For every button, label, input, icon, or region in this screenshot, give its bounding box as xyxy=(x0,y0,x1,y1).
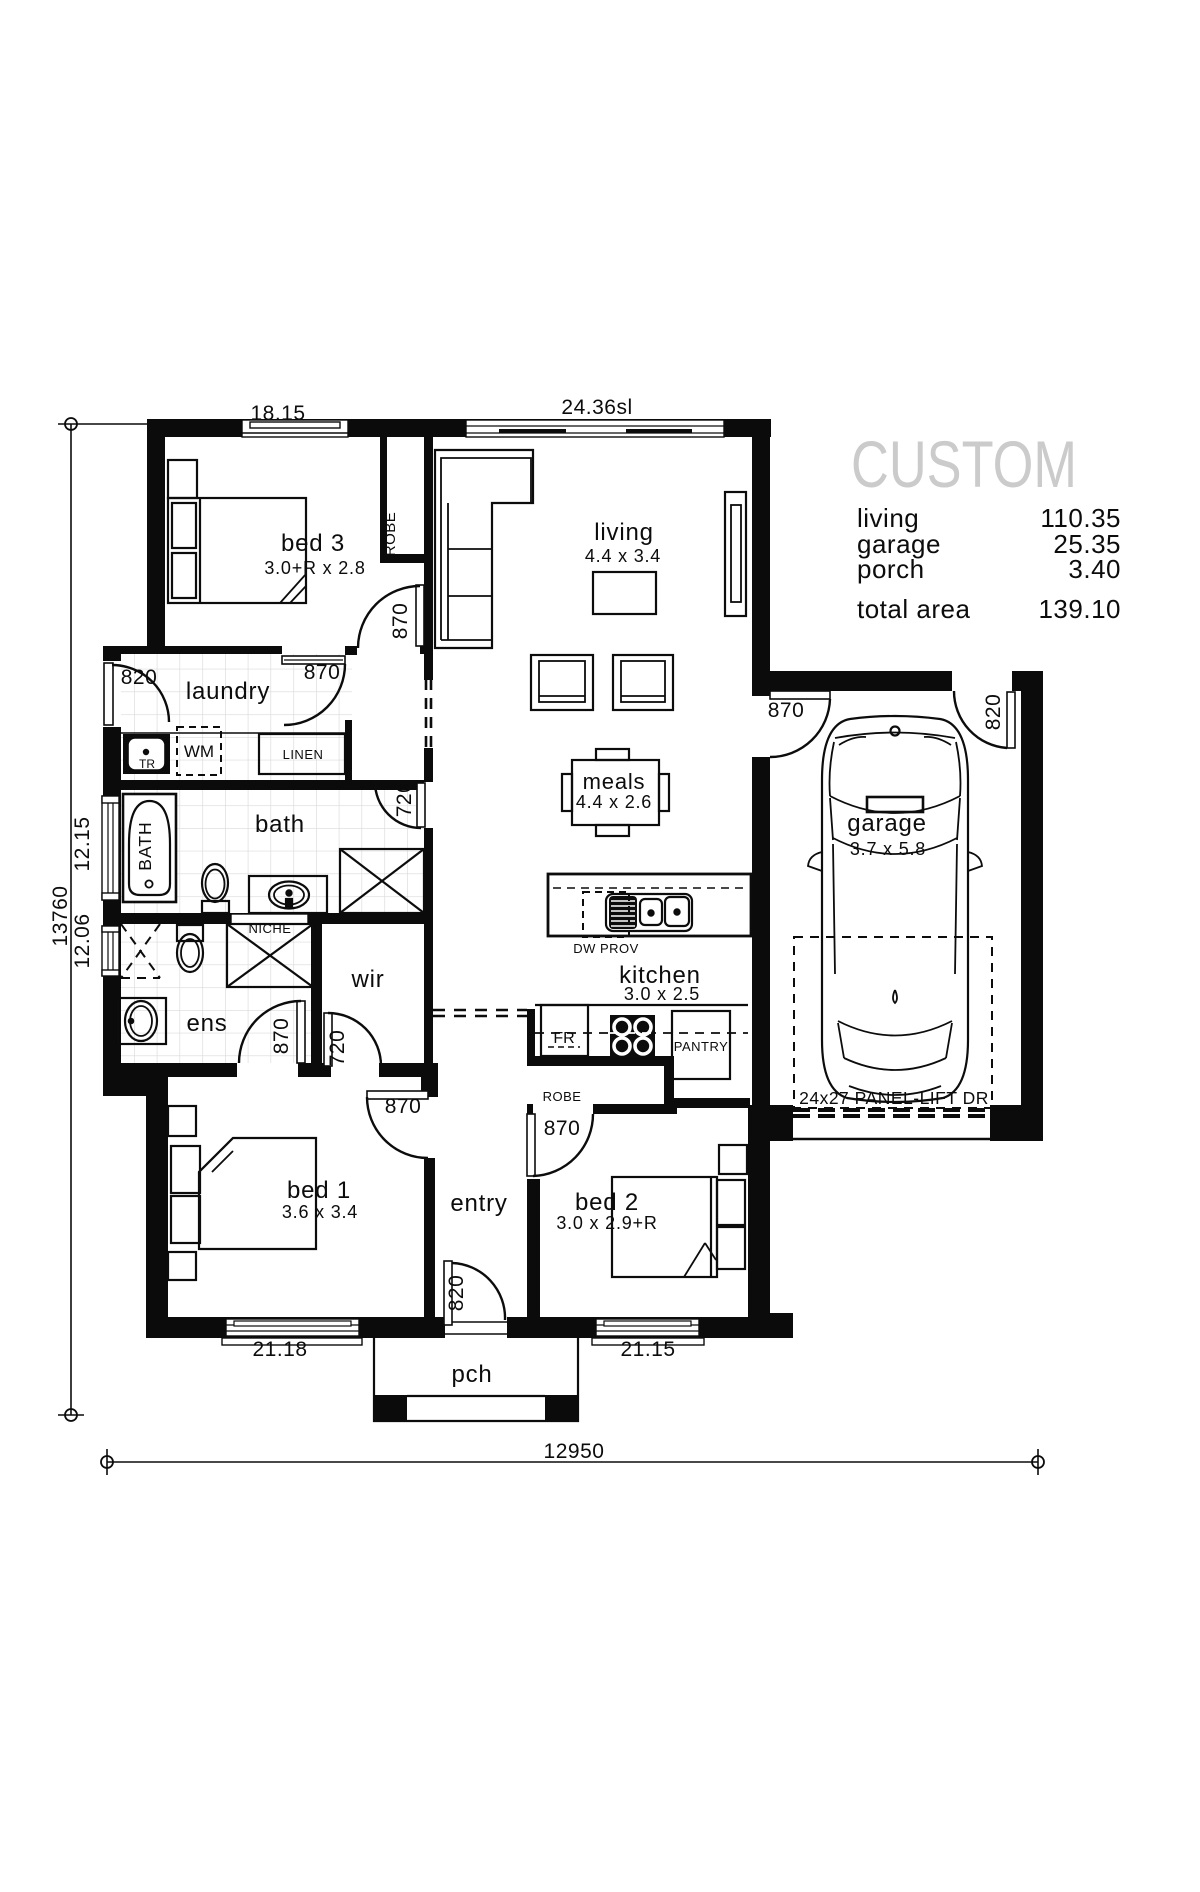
svg-text:12950: 12950 xyxy=(544,1440,605,1463)
svg-text:24x27 PANEL-LIFT DR: 24x27 PANEL-LIFT DR xyxy=(799,1088,989,1108)
svg-text:BATH: BATH xyxy=(135,821,155,870)
svg-text:870: 870 xyxy=(768,699,805,722)
svg-text:24.36sl: 24.36sl xyxy=(561,396,632,419)
svg-text:wir: wir xyxy=(350,966,384,993)
svg-text:12.15: 12.15 xyxy=(71,816,94,871)
svg-text:DW PROV: DW PROV xyxy=(573,941,639,956)
svg-text:PANTRY: PANTRY xyxy=(674,1039,729,1054)
svg-text:21.18: 21.18 xyxy=(252,1338,307,1361)
svg-text:139.10: 139.10 xyxy=(1038,594,1121,624)
svg-text:3.7 x 5.8: 3.7 x 5.8 xyxy=(850,839,926,859)
svg-text:720: 720 xyxy=(393,781,416,818)
svg-text:ROBE: ROBE xyxy=(382,512,399,557)
svg-text:870: 870 xyxy=(389,603,412,640)
svg-text:ens: ens xyxy=(186,1010,227,1037)
svg-text:ROBE: ROBE xyxy=(543,1089,582,1104)
svg-text:CUSTOM: CUSTOM xyxy=(851,427,1077,501)
svg-text:720: 720 xyxy=(326,1030,349,1067)
svg-text:820: 820 xyxy=(121,666,158,689)
svg-text:21.15: 21.15 xyxy=(620,1338,675,1361)
svg-text:LINEN: LINEN xyxy=(283,747,324,762)
svg-text:870: 870 xyxy=(544,1117,581,1140)
svg-text:3.0 x 2.5: 3.0 x 2.5 xyxy=(624,984,700,1004)
svg-text:total area: total area xyxy=(857,594,970,624)
svg-text:870: 870 xyxy=(304,661,341,684)
svg-text:entry: entry xyxy=(450,1190,507,1217)
svg-text:870: 870 xyxy=(385,1095,422,1118)
svg-text:870: 870 xyxy=(270,1018,293,1055)
svg-text:FR: FR xyxy=(553,1030,574,1047)
svg-text:pch: pch xyxy=(451,1361,492,1388)
svg-text:820: 820 xyxy=(445,1275,468,1312)
svg-text:bed 1: bed 1 xyxy=(287,1177,351,1204)
svg-text:laundry: laundry xyxy=(186,678,270,705)
svg-text:living: living xyxy=(594,519,654,546)
svg-text:3.0 x 2.9+R: 3.0 x 2.9+R xyxy=(556,1213,657,1233)
svg-text:WM: WM xyxy=(184,742,214,761)
svg-text:bed 2: bed 2 xyxy=(575,1189,639,1216)
svg-text:3.6 x 3.4: 3.6 x 3.4 xyxy=(282,1202,358,1222)
svg-text:bed 3: bed 3 xyxy=(281,530,345,557)
svg-text:13760: 13760 xyxy=(49,886,72,947)
svg-text:TR: TR xyxy=(139,757,155,771)
svg-text:12.06: 12.06 xyxy=(71,913,94,968)
svg-text:18.15: 18.15 xyxy=(250,402,305,425)
svg-text:3.40: 3.40 xyxy=(1068,554,1121,584)
svg-text:NICHE: NICHE xyxy=(249,921,292,936)
svg-text:3.0+R x 2.8: 3.0+R x 2.8 xyxy=(264,558,365,578)
svg-text:820: 820 xyxy=(982,694,1005,731)
svg-text:porch: porch xyxy=(857,554,925,584)
svg-text:meals: meals xyxy=(583,769,646,794)
svg-text:garage: garage xyxy=(847,810,927,837)
svg-text:bath: bath xyxy=(255,811,305,838)
svg-text:4.4 x 2.6: 4.4 x 2.6 xyxy=(576,792,652,812)
svg-text:4.4 x 3.4: 4.4 x 3.4 xyxy=(585,546,661,566)
